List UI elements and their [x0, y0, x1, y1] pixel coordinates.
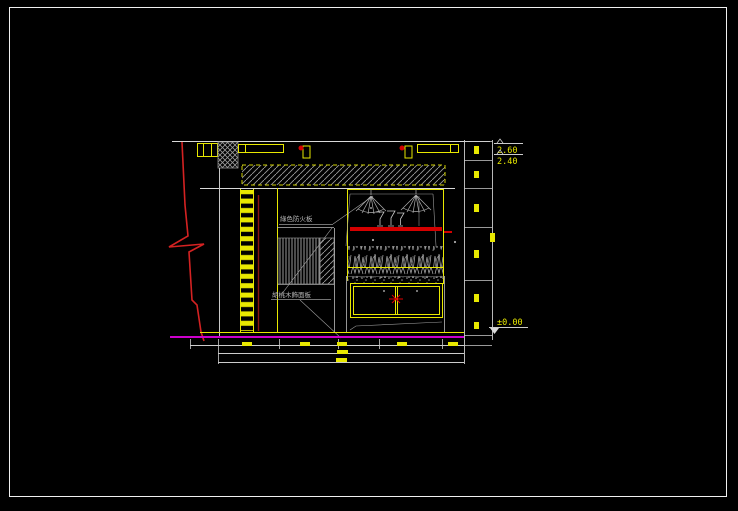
level-triangle-icon — [497, 139, 503, 143]
diagonal-hatch-panel — [320, 238, 334, 284]
cabinet-outer — [351, 284, 443, 318]
level-mark-upper: 2.60 — [494, 139, 523, 156]
downlight-dot-right — [400, 146, 405, 151]
plant-band-upper — [348, 246, 443, 267]
red-counter-end — [444, 231, 452, 233]
pebble-band — [346, 277, 444, 283]
material-label-bottom: 胡桃木飾面板 — [272, 290, 312, 299]
level-mark-floor: ±0.00 — [489, 318, 528, 334]
light-cove-right — [405, 145, 459, 159]
skirting-leader — [350, 322, 442, 330]
cad-viewport: 綠色防火板 胡桃木飾面板 — [0, 0, 738, 511]
light-dot — [370, 207, 372, 209]
base-cabinet — [350, 284, 443, 331]
ceiling-soffit-hatch — [242, 165, 445, 185]
spray-light-right — [401, 189, 431, 213]
level-triangle-icon — [490, 328, 499, 334]
elevation-value-lower: 2.40 — [497, 157, 517, 167]
break-line-symbol — [169, 142, 204, 341]
grille-hatch-panel — [278, 238, 320, 284]
marker-dot — [454, 241, 456, 243]
spray-light-left — [356, 189, 386, 214]
elevation-value-floor: ±0.00 — [497, 318, 523, 328]
marker-dot — [416, 290, 418, 292]
marker-dot — [383, 290, 385, 292]
downlight-dot-left — [299, 146, 304, 151]
left-wall-column — [220, 168, 278, 337]
horizontal-dimension-rows — [190, 339, 464, 364]
vertical-dimension-chain — [464, 140, 495, 364]
material-label-top: 綠色防火板 — [280, 214, 313, 223]
vertical-dim-text-blobs — [474, 146, 495, 329]
beam-section-left — [198, 144, 218, 157]
red-counter-bar — [350, 227, 442, 231]
brick-column-section — [240, 190, 254, 331]
concrete-block-section — [218, 142, 238, 168]
marker-dot — [372, 239, 374, 241]
drawing-canvas: 綠色防火板 胡桃木飾面板 — [0, 0, 738, 511]
goblet-glasses — [376, 211, 404, 226]
horizontal-dim-text-blobs — [242, 342, 458, 362]
cabinet-inner — [354, 287, 440, 315]
